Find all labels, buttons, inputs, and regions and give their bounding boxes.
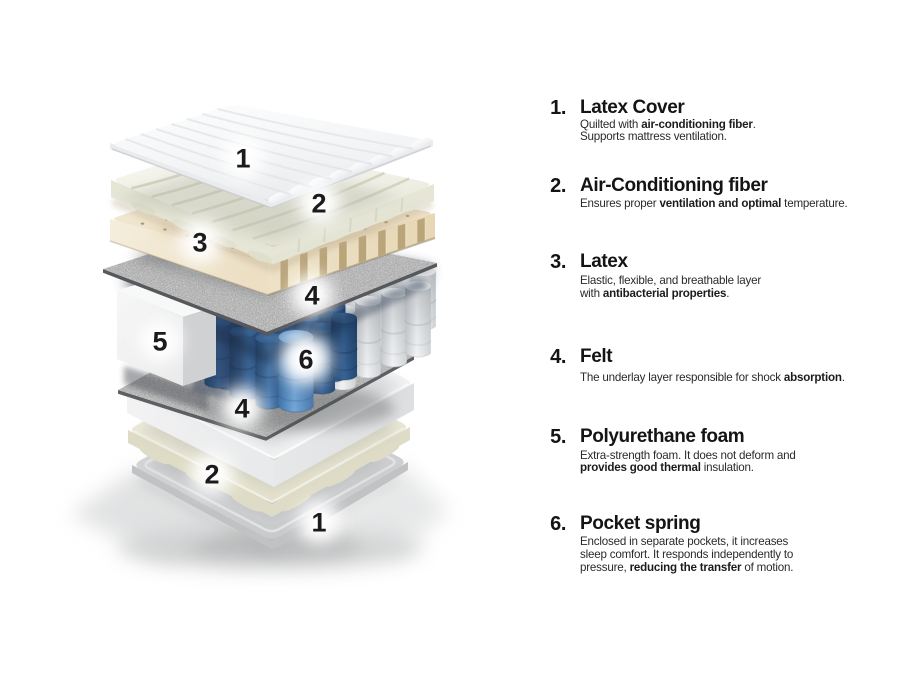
svg-text:6: 6	[298, 345, 313, 375]
svg-text:2: 2	[311, 189, 326, 219]
svg-text:1: 1	[235, 144, 250, 174]
svg-text:3: 3	[192, 228, 207, 258]
svg-text:4: 4	[304, 281, 319, 311]
svg-text:5: 5	[152, 327, 167, 357]
svg-text:2: 2	[204, 460, 219, 490]
svg-text:4: 4	[234, 394, 249, 424]
svg-text:1: 1	[311, 508, 326, 538]
